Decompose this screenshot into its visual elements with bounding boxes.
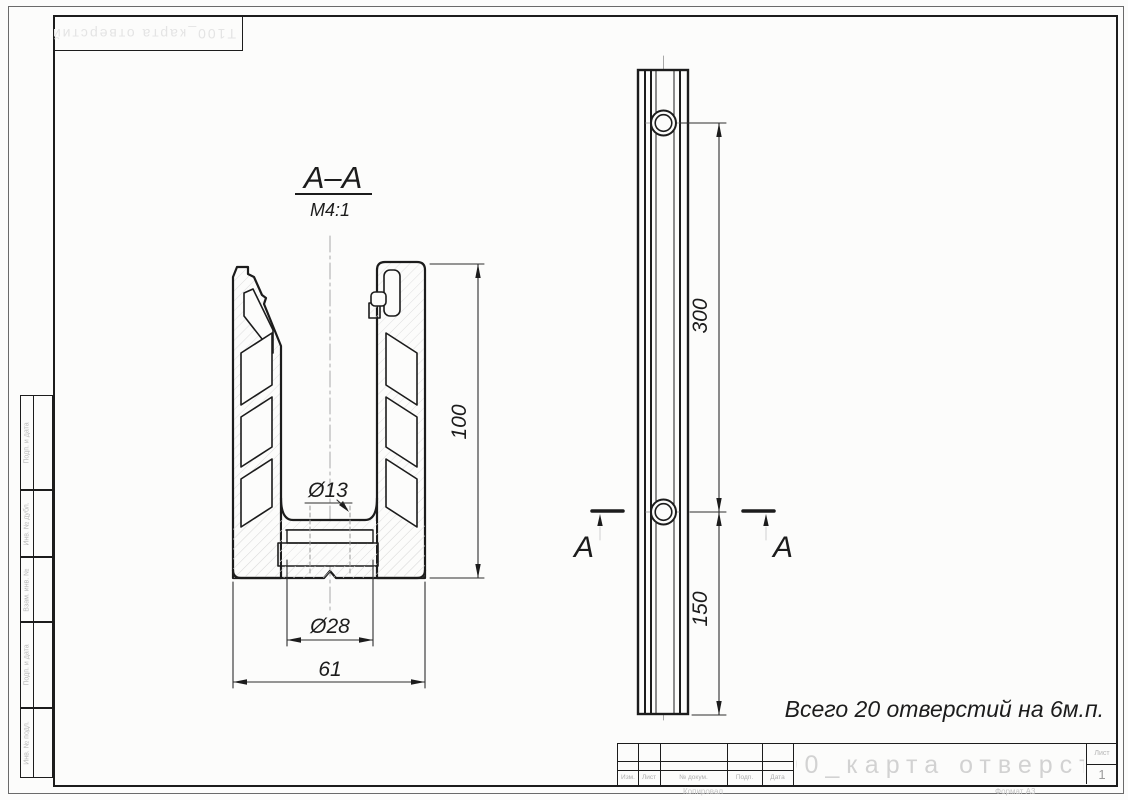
note-text: Всего 20 отверстий на 6м.п.	[785, 696, 1104, 722]
elevation-view	[592, 56, 774, 722]
format-label: Формат А3	[995, 787, 1035, 797]
sheet-number: 1	[1086, 765, 1117, 784]
counterbore-step	[278, 543, 378, 566]
drawing-canvas: А–А М4:1 Ø13 Ø28 61 100 300 150 А А Всег…	[0, 0, 1128, 800]
hook-opening	[371, 292, 386, 306]
counterbore-recess	[287, 530, 373, 543]
tb-col-podp: Подп.	[727, 771, 762, 785]
hook-slot	[384, 270, 400, 316]
section-view	[233, 236, 484, 688]
dim-width-label: 61	[318, 658, 341, 681]
dim-hole-small-label: Ø13	[307, 479, 348, 502]
drawing-sheet: Т100_карта отверстий Подп. и дата Инв. №…	[0, 0, 1128, 800]
section-scale-label: М4:1	[310, 200, 350, 220]
drawing-designation: Т100_карта отверстий	[796, 744, 1084, 786]
cut-letter-right: А	[771, 531, 793, 564]
cut-letter-left: А	[572, 531, 594, 564]
tb-col-data: Дата	[762, 771, 793, 785]
dim-end-offset-label: 150	[689, 591, 712, 626]
dim-height-label: 100	[448, 404, 471, 439]
tb-col-docnum: № докум.	[660, 771, 727, 785]
title-block: Изм. Лист № докум. Подп. Дата Т100_карта…	[617, 743, 1118, 787]
dim-counterbore-label: Ø28	[309, 615, 350, 638]
tb-col-list: Лист	[638, 771, 660, 785]
right-wall-cavities	[386, 333, 417, 527]
tb-col-izm: Изм.	[618, 771, 638, 785]
section-title-label: А–А	[302, 160, 363, 195]
copy-label: Копировал	[683, 787, 723, 797]
dim-spacing-label: 300	[689, 298, 712, 333]
sheet-count-header: Лист	[1086, 744, 1117, 765]
